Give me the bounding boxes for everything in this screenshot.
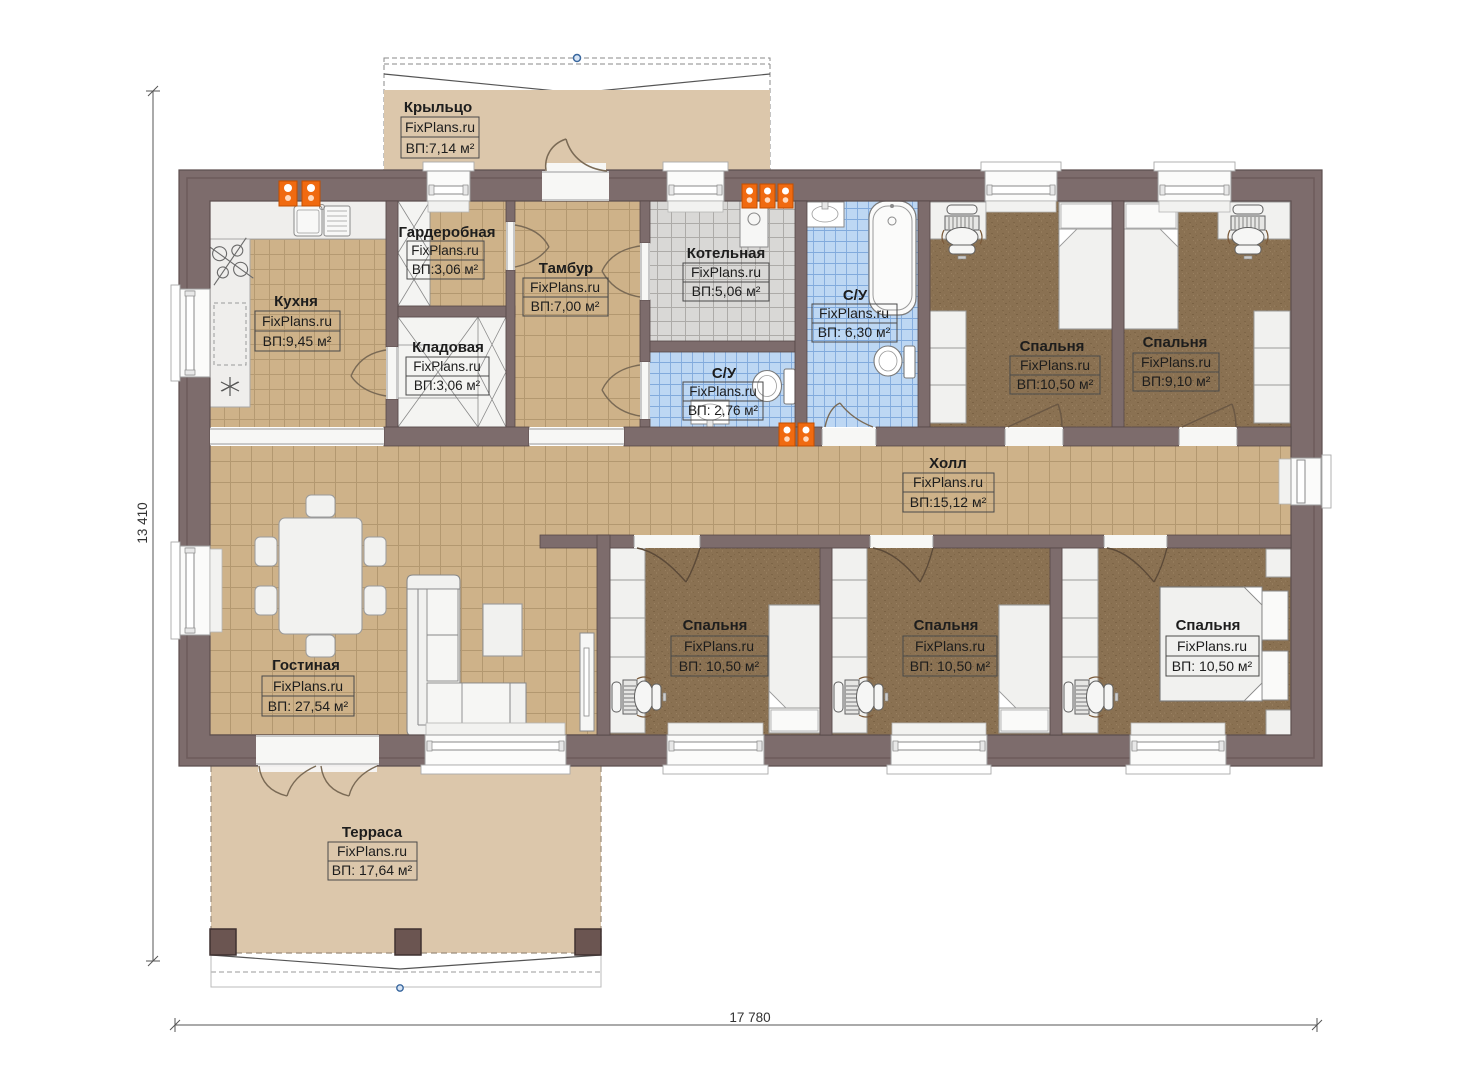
svg-text:Котельная: Котельная: [687, 245, 766, 262]
svg-text:ВП:15,12 м²: ВП:15,12 м²: [910, 494, 987, 510]
svg-text:FixPlans.ru: FixPlans.ru: [915, 638, 985, 654]
svg-text:ВП:5,06 м²: ВП:5,06 м²: [692, 283, 761, 299]
svg-text:FixPlans.ru: FixPlans.ru: [1141, 354, 1211, 370]
svg-text:Холл: Холл: [929, 455, 967, 472]
svg-text:Крыльцо: Крыльцо: [404, 99, 472, 116]
svg-text:FixPlans.ru: FixPlans.ru: [337, 843, 407, 859]
svg-text:FixPlans.ru: FixPlans.ru: [411, 243, 479, 258]
svg-text:С/У: С/У: [843, 287, 868, 304]
svg-text:Спальня: Спальня: [1176, 617, 1241, 634]
svg-text:ВП:7,14 м²: ВП:7,14 м²: [406, 140, 475, 156]
svg-text:13 410: 13 410: [135, 502, 150, 543]
svg-text:Кухня: Кухня: [274, 293, 318, 310]
svg-text:FixPlans.ru: FixPlans.ru: [684, 638, 754, 654]
svg-text:Спальня: Спальня: [914, 617, 979, 634]
svg-text:Терраса: Терраса: [342, 824, 403, 841]
svg-text:ВП:9,10 м²: ВП:9,10 м²: [1142, 373, 1211, 389]
svg-text:Гостиная: Гостиная: [272, 657, 340, 674]
svg-text:FixPlans.ru: FixPlans.ru: [530, 279, 600, 295]
svg-text:ВП: 10,50 м²: ВП: 10,50 м²: [910, 658, 991, 674]
svg-text:Спальня: Спальня: [683, 617, 748, 634]
svg-text:FixPlans.ru: FixPlans.ru: [273, 678, 343, 694]
svg-text:ВП: 2,76 м²: ВП: 2,76 м²: [688, 403, 759, 418]
svg-text:Кладовая: Кладовая: [412, 339, 484, 356]
svg-text:FixPlans.ru: FixPlans.ru: [819, 305, 889, 321]
svg-text:17 780: 17 780: [729, 1010, 770, 1025]
svg-text:ВП:9,45 м²: ВП:9,45 м²: [263, 333, 332, 349]
svg-text:FixPlans.ru: FixPlans.ru: [691, 264, 761, 280]
svg-text:FixPlans.ru: FixPlans.ru: [913, 474, 983, 490]
svg-text:FixPlans.ru: FixPlans.ru: [1177, 638, 1247, 654]
svg-text:ВП: 10,50 м²: ВП: 10,50 м²: [1172, 658, 1253, 674]
svg-text:Спальня: Спальня: [1020, 338, 1085, 355]
svg-text:ВП: 17,64 м²: ВП: 17,64 м²: [332, 862, 413, 878]
svg-text:FixPlans.ru: FixPlans.ru: [689, 384, 757, 399]
svg-text:ВП:3,06 м²: ВП:3,06 м²: [414, 378, 481, 393]
svg-text:Спальня: Спальня: [1143, 334, 1208, 351]
svg-text:ВП:7,00 м²: ВП:7,00 м²: [531, 298, 600, 314]
svg-text:Гардеробная: Гардеробная: [398, 224, 495, 241]
svg-text:FixPlans.ru: FixPlans.ru: [413, 359, 481, 374]
svg-text:FixPlans.ru: FixPlans.ru: [405, 119, 475, 135]
svg-text:ВП:10,50 м²: ВП:10,50 м²: [1017, 376, 1094, 392]
svg-text:ВП: 27,54 м²: ВП: 27,54 м²: [268, 698, 349, 714]
svg-text:Тамбур: Тамбур: [539, 260, 593, 277]
svg-text:ВП:3,06 м²: ВП:3,06 м²: [412, 262, 479, 277]
svg-text:ВП: 10,50 м²: ВП: 10,50 м²: [679, 658, 760, 674]
svg-text:ВП: 6,30 м²: ВП: 6,30 м²: [818, 324, 891, 340]
svg-text:FixPlans.ru: FixPlans.ru: [262, 313, 332, 329]
svg-text:FixPlans.ru: FixPlans.ru: [1020, 357, 1090, 373]
svg-text:С/У: С/У: [712, 365, 737, 382]
